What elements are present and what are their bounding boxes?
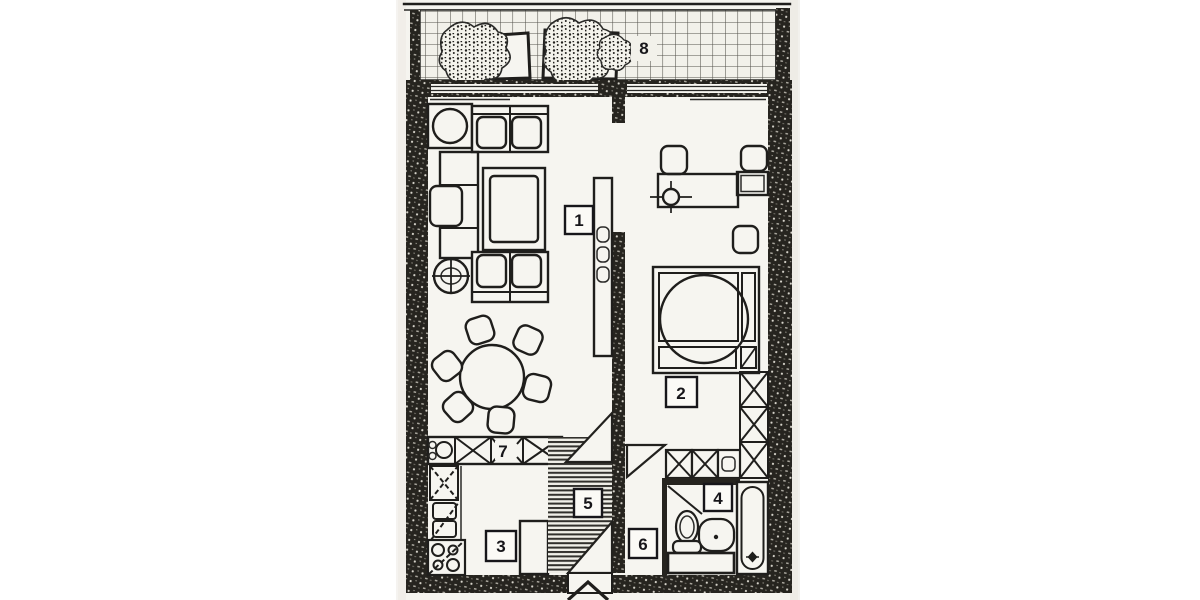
bed xyxy=(653,267,759,373)
room-label-8-terrace: 8 xyxy=(639,39,648,58)
refrigerator xyxy=(520,521,548,574)
room-label-3: 3 xyxy=(486,531,516,561)
round-side-table xyxy=(428,104,472,148)
wall-bottom-right xyxy=(612,573,792,593)
room-label-6-entry: 6 xyxy=(638,535,647,554)
wardrobe-row xyxy=(666,450,740,478)
sofa-top xyxy=(472,106,548,152)
room-label-1-living-room: 1 xyxy=(574,211,583,230)
bathroom-sink xyxy=(699,519,734,551)
terrace-wall-left xyxy=(410,10,420,80)
terrace-wall-right xyxy=(776,8,790,80)
bathroom-wall-left xyxy=(662,478,667,575)
window-living-room xyxy=(431,84,598,93)
room-label-2: 2 xyxy=(666,377,697,407)
room-label-6: 6 xyxy=(629,529,657,558)
room-label-5-hallway: 5 xyxy=(583,494,592,513)
corner-chair xyxy=(741,146,767,171)
bedside-chair xyxy=(733,226,758,253)
floor-plan-page: 8 xyxy=(0,0,1200,600)
partition-stub-top xyxy=(612,95,625,123)
room-label-1: 1 xyxy=(565,206,593,234)
desk-chair xyxy=(661,146,687,174)
room-label-7-kitchen-counter: 7 xyxy=(498,442,507,461)
room-label-4-bathroom: 4 xyxy=(713,489,723,508)
entry: 6 xyxy=(629,529,657,558)
floor-plan-drawing: 8 xyxy=(0,0,1200,600)
room-label-4: 4 xyxy=(704,484,732,511)
dining-chair xyxy=(487,406,515,434)
bathtub xyxy=(737,482,768,574)
room-label-2-bedroom: 2 xyxy=(676,384,685,403)
hallway: 5 xyxy=(548,413,612,600)
room-label-5: 5 xyxy=(574,489,602,517)
bush-left xyxy=(439,22,510,84)
window-bedroom xyxy=(627,84,767,93)
armchair xyxy=(483,168,545,250)
terrace: 8 xyxy=(404,4,790,85)
toilet xyxy=(673,511,701,553)
bath-step xyxy=(668,553,734,573)
wall-left xyxy=(406,80,428,593)
partition-shelf xyxy=(594,178,612,356)
dining-chair xyxy=(521,372,553,404)
kitchen-counter-row: 7 xyxy=(428,437,562,464)
room-label-3-kitchen: 3 xyxy=(496,537,505,556)
sofa-lower xyxy=(472,252,548,302)
stove xyxy=(428,540,465,575)
scan-edge-left xyxy=(396,0,406,600)
wall-right xyxy=(768,80,792,593)
partition-central xyxy=(612,232,625,573)
